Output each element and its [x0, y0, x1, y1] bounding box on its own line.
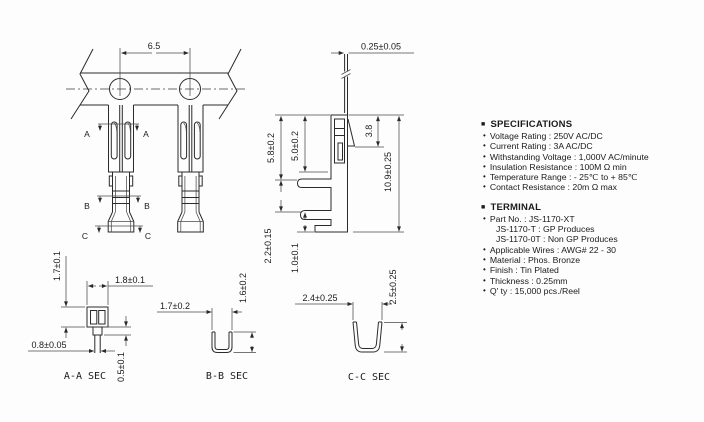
- bullet-icon: •: [483, 276, 486, 286]
- front-view: 6.5 A A B B C C: [66, 41, 247, 241]
- dim-lance-height: 3.8: [364, 125, 374, 138]
- svg-text:C: C: [145, 231, 151, 241]
- dim-crimp-height: 2.2±0.15: [263, 229, 273, 264]
- section-bb-label: B-B SEC: [206, 371, 248, 382]
- dim-box-height-outer: 5.8±0.2: [266, 133, 276, 163]
- dim-tail-height: 1.0±0.1: [290, 243, 300, 273]
- dim-bb-height: 1.6±0.2: [238, 273, 248, 303]
- section-bb-view: 1.7±0.2 1.6±0.2 B-B SEC: [157, 273, 256, 382]
- terminal-title: ■ TERMINAL: [481, 202, 703, 214]
- bullet-icon: •: [483, 255, 486, 265]
- section-aa-label: A-A SEC: [64, 371, 106, 382]
- dim-aa-width: 1.8±0.1: [115, 275, 145, 285]
- dim-pitch: 6.5: [148, 41, 161, 51]
- dim-aa-height: 1.7±0.1: [52, 251, 62, 281]
- specifications-title: ■ SPECIFICATIONS: [481, 119, 703, 131]
- side-view: 0.25±0.05 5.8±0.2 5.0±0.2 3.8 10.9±0.25 …: [263, 42, 414, 273]
- section-marker-c: C C: [82, 226, 151, 241]
- terminal-item: •Applicable Wires : AWG# 22 - 30: [481, 245, 703, 255]
- terminal-part-variant: JS-1170-T : GP Produces: [481, 224, 703, 234]
- spec-item: •Insulation Resistance : 100M Ω min: [481, 162, 703, 172]
- svg-text:A: A: [143, 129, 149, 139]
- terminal-item: •Q' ty : 15,000 pcs./Reel: [481, 286, 703, 296]
- section-aa-view: 1.8±0.1 1.7±0.1 0.8±0.05 0.5±0.1 A-A SEC: [28, 251, 153, 382]
- bullet-icon: •: [483, 131, 486, 141]
- terminal-item: •Thickness : 0.25mm: [481, 276, 703, 286]
- spec-item: •Temperature Range : - 25℃ to + 85℃: [481, 172, 703, 182]
- spec-item: •Withstanding Voltage : 1,000V AC/minute: [481, 152, 703, 162]
- section-cc-view: 2.4±0.25 2.5±0.25 C-C SEC: [295, 270, 407, 383]
- bullet-icon: •: [483, 214, 486, 224]
- dim-total-height: 10.9±0.25: [383, 152, 393, 192]
- terminal-drawing-page: 6.5 A A B B C C: [0, 0, 704, 422]
- bullet-icon: •: [483, 245, 486, 255]
- dim-strip-thickness: 0.25±0.05: [361, 42, 401, 52]
- svg-text:A: A: [84, 129, 90, 139]
- svg-text:B: B: [84, 201, 90, 211]
- terminal-item: •Finish : Tin Plated: [481, 265, 703, 275]
- dim-aa-tail-width: 0.8±0.05: [32, 340, 67, 350]
- terminal-item: •Part No. : JS-1170-XT: [481, 214, 703, 224]
- bullet-icon: •: [483, 182, 486, 192]
- bullet-icon: •: [483, 172, 486, 182]
- dim-bb-width: 1.7±0.2: [160, 301, 190, 311]
- info-column: ■ SPECIFICATIONS •Voltage Rating : 250V …: [481, 119, 703, 296]
- spec-item: •Voltage Rating : 250V AC/DC: [481, 131, 703, 141]
- terminal-item: •Material : Phos. Bronze: [481, 255, 703, 265]
- square-marker-icon: ■: [481, 202, 485, 213]
- dim-box-height-inner: 5.0±0.2: [290, 131, 300, 161]
- section-cc-label: C-C SEC: [348, 372, 390, 383]
- bullet-icon: •: [483, 162, 486, 172]
- dim-aa-stem-height: 0.5±0.1: [116, 352, 126, 382]
- dim-cc-width: 2.4±0.25: [303, 293, 338, 303]
- bullet-icon: •: [483, 265, 486, 275]
- svg-text:C: C: [82, 231, 88, 241]
- bullet-icon: •: [483, 141, 486, 151]
- bullet-icon: •: [483, 286, 486, 296]
- dim-cc-height: 2.5±0.25: [388, 270, 398, 305]
- svg-text:B: B: [144, 201, 150, 211]
- square-marker-icon: ■: [481, 119, 485, 130]
- spec-item: •Current Rating : 3A AC/DC: [481, 141, 703, 151]
- spec-item: •Contact Resistance : 20m Ω max: [481, 182, 703, 192]
- bullet-icon: •: [483, 152, 486, 162]
- terminal-part-variant: JS-1170-0T : Non GP Produces: [481, 234, 703, 244]
